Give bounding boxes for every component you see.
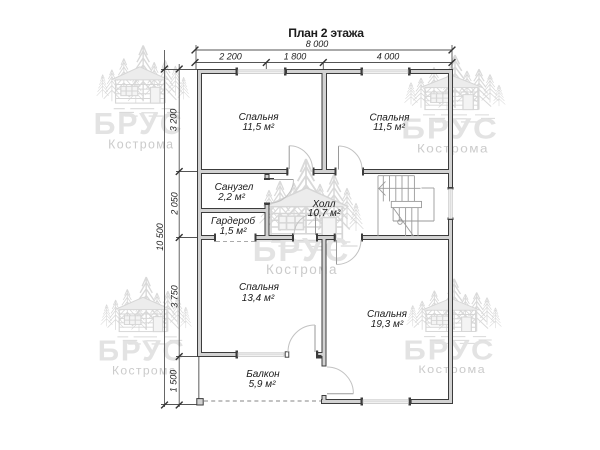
svg-text:Кострома: Кострома xyxy=(266,262,338,277)
svg-text:5,9 м²: 5,9 м² xyxy=(249,379,277,390)
svg-text:19,3 м²: 19,3 м² xyxy=(371,319,404,330)
svg-text:План 2 этажа: План 2 этажа xyxy=(288,26,364,40)
svg-text:8 000: 8 000 xyxy=(306,39,329,49)
svg-text:3 750: 3 750 xyxy=(170,285,180,308)
svg-text:3 200: 3 200 xyxy=(169,109,179,132)
svg-text:2 200: 2 200 xyxy=(218,52,242,62)
svg-text:1 500: 1 500 xyxy=(169,370,179,393)
svg-text:Спальня: Спальня xyxy=(239,282,280,293)
svg-text:1 800: 1 800 xyxy=(284,52,307,62)
svg-text:10 500: 10 500 xyxy=(155,223,165,251)
svg-text:11,5 м²: 11,5 м² xyxy=(373,122,405,133)
svg-text:2,2 м²: 2,2 м² xyxy=(217,192,246,203)
svg-text:10,7 м²: 10,7 м² xyxy=(308,208,341,219)
svg-text:13,4 м²: 13,4 м² xyxy=(242,293,275,304)
svg-text:1,5 м²: 1,5 м² xyxy=(220,226,248,237)
svg-text:11,5 м²: 11,5 м² xyxy=(242,122,274,133)
svg-text:4 000: 4 000 xyxy=(377,52,400,62)
svg-text:2 050: 2 050 xyxy=(170,192,180,216)
